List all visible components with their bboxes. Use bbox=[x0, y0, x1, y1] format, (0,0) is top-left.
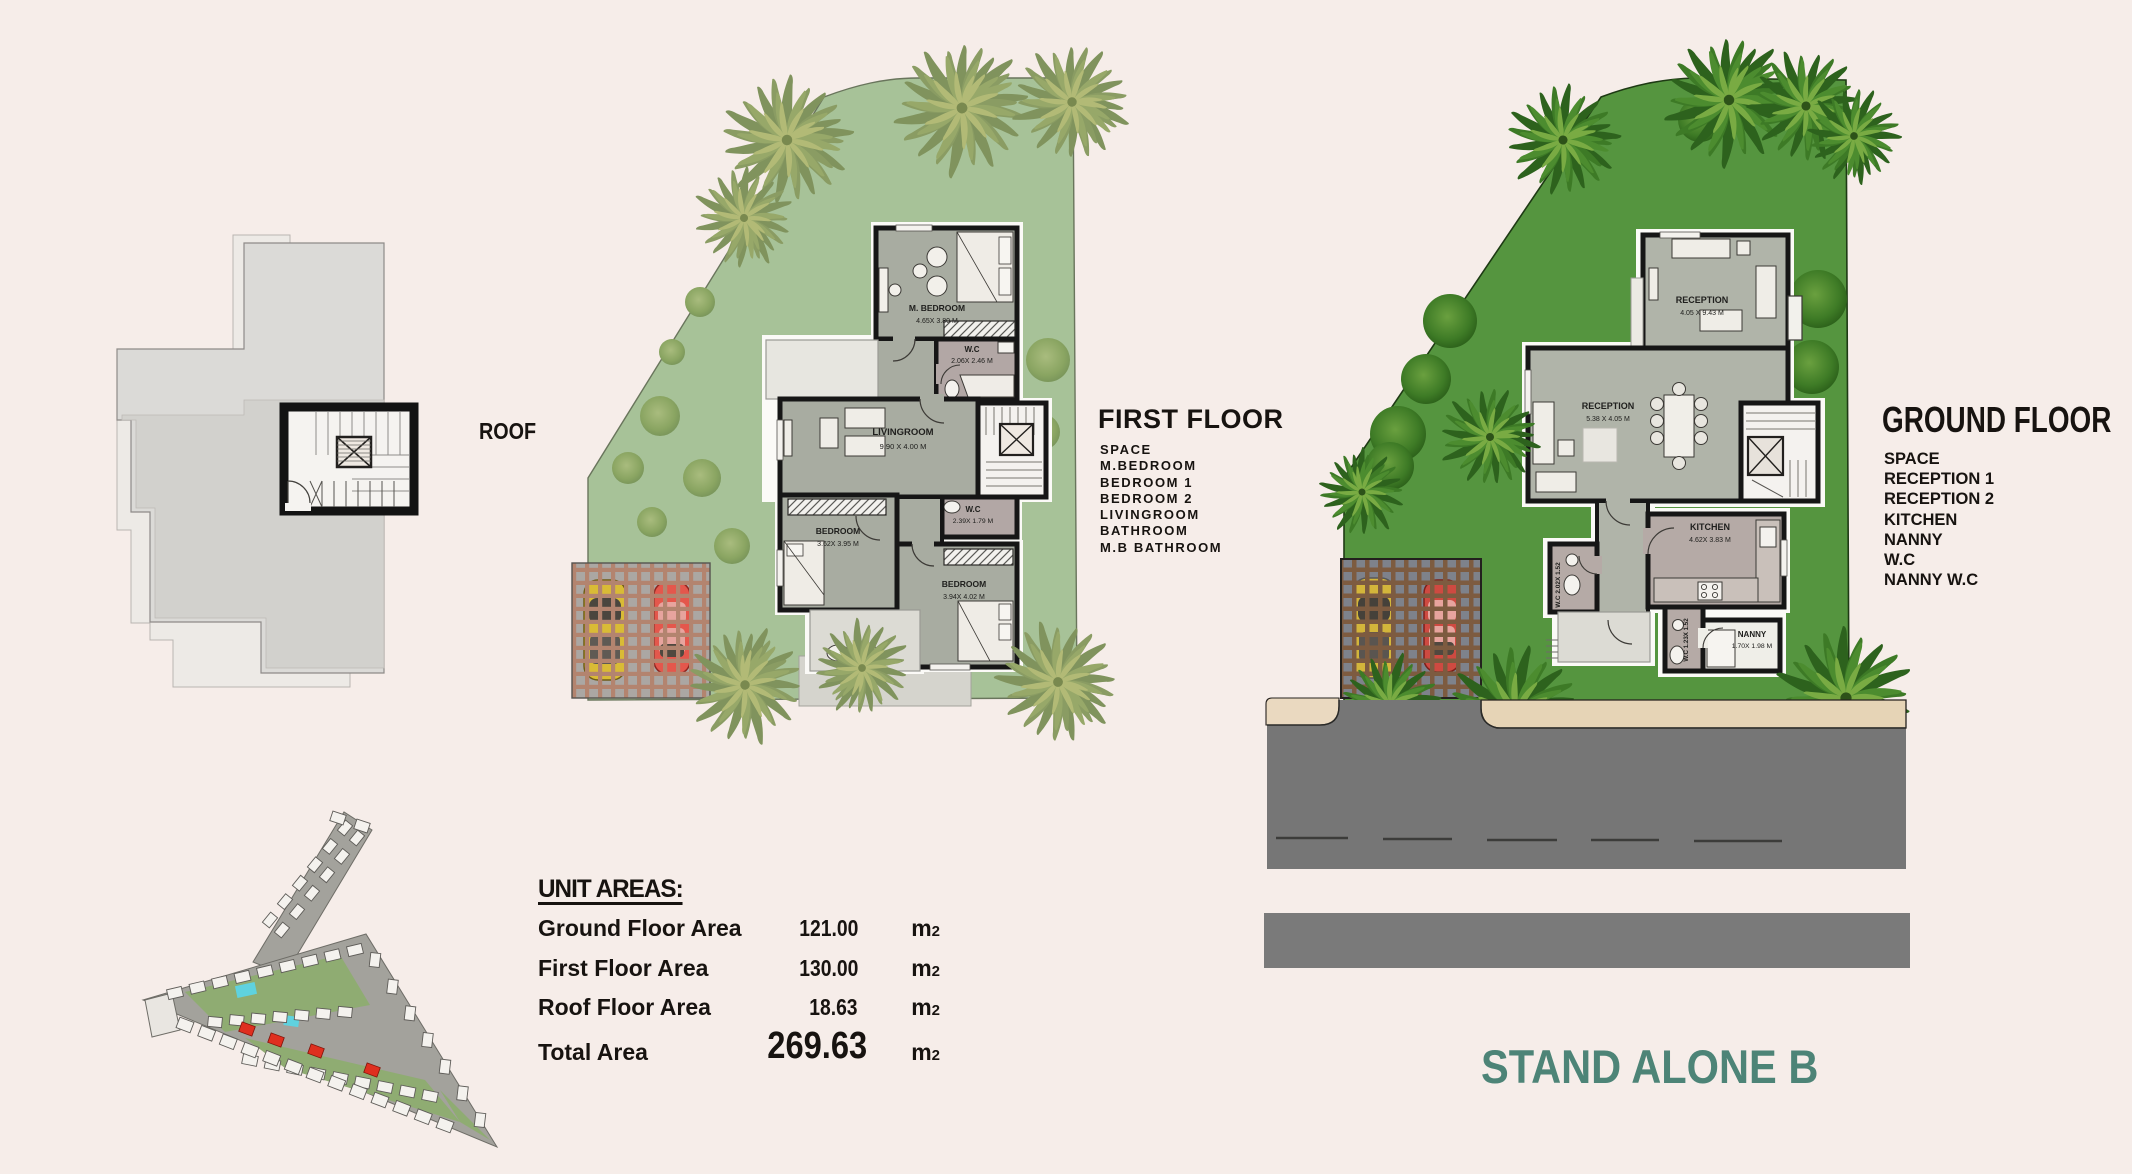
svg-text:LIVINGROOM: LIVINGROOM bbox=[872, 427, 933, 438]
svg-text:BEDROOM: BEDROOM bbox=[942, 579, 986, 589]
svg-text:2.06X 2.46 M: 2.06X 2.46 M bbox=[951, 358, 993, 365]
svg-text:W.C 1.23X 1.52: W.C 1.23X 1.52 bbox=[1683, 618, 1690, 662]
svg-text:W.C: W.C bbox=[965, 505, 980, 514]
svg-text:RECEPTION: RECEPTION bbox=[1676, 295, 1729, 305]
svg-text:9.90 X 4.00 M: 9.90 X 4.00 M bbox=[880, 442, 927, 451]
svg-text:BEDROOM: BEDROOM bbox=[816, 526, 860, 536]
svg-text:4.65X 3.80 M: 4.65X 3.80 M bbox=[916, 318, 958, 325]
svg-text:4.05 X 9.43 M: 4.05 X 9.43 M bbox=[1680, 310, 1724, 317]
svg-text:M. BEDROOM: M. BEDROOM bbox=[909, 303, 965, 313]
svg-text:4.62X 3.83 M: 4.62X 3.83 M bbox=[1689, 537, 1731, 544]
svg-text:W.C 2.02X 1.52: W.C 2.02X 1.52 bbox=[1555, 562, 1562, 608]
svg-text:5.38 X 4.05 M: 5.38 X 4.05 M bbox=[1586, 416, 1630, 423]
svg-text:3.62X 3.95 M: 3.62X 3.95 M bbox=[817, 541, 859, 548]
svg-text:W.C: W.C bbox=[964, 345, 979, 354]
svg-text:KITCHEN: KITCHEN bbox=[1690, 522, 1730, 532]
svg-text:2.39X 1.79 M: 2.39X 1.79 M bbox=[953, 518, 994, 525]
svg-text:RECEPTION: RECEPTION bbox=[1582, 401, 1635, 411]
svg-text:1.70X 1.98 M: 1.70X 1.98 M bbox=[1732, 643, 1773, 650]
svg-text:3.94X 4.02 M: 3.94X 4.02 M bbox=[943, 594, 985, 601]
svg-text:NANNY: NANNY bbox=[1738, 630, 1767, 639]
